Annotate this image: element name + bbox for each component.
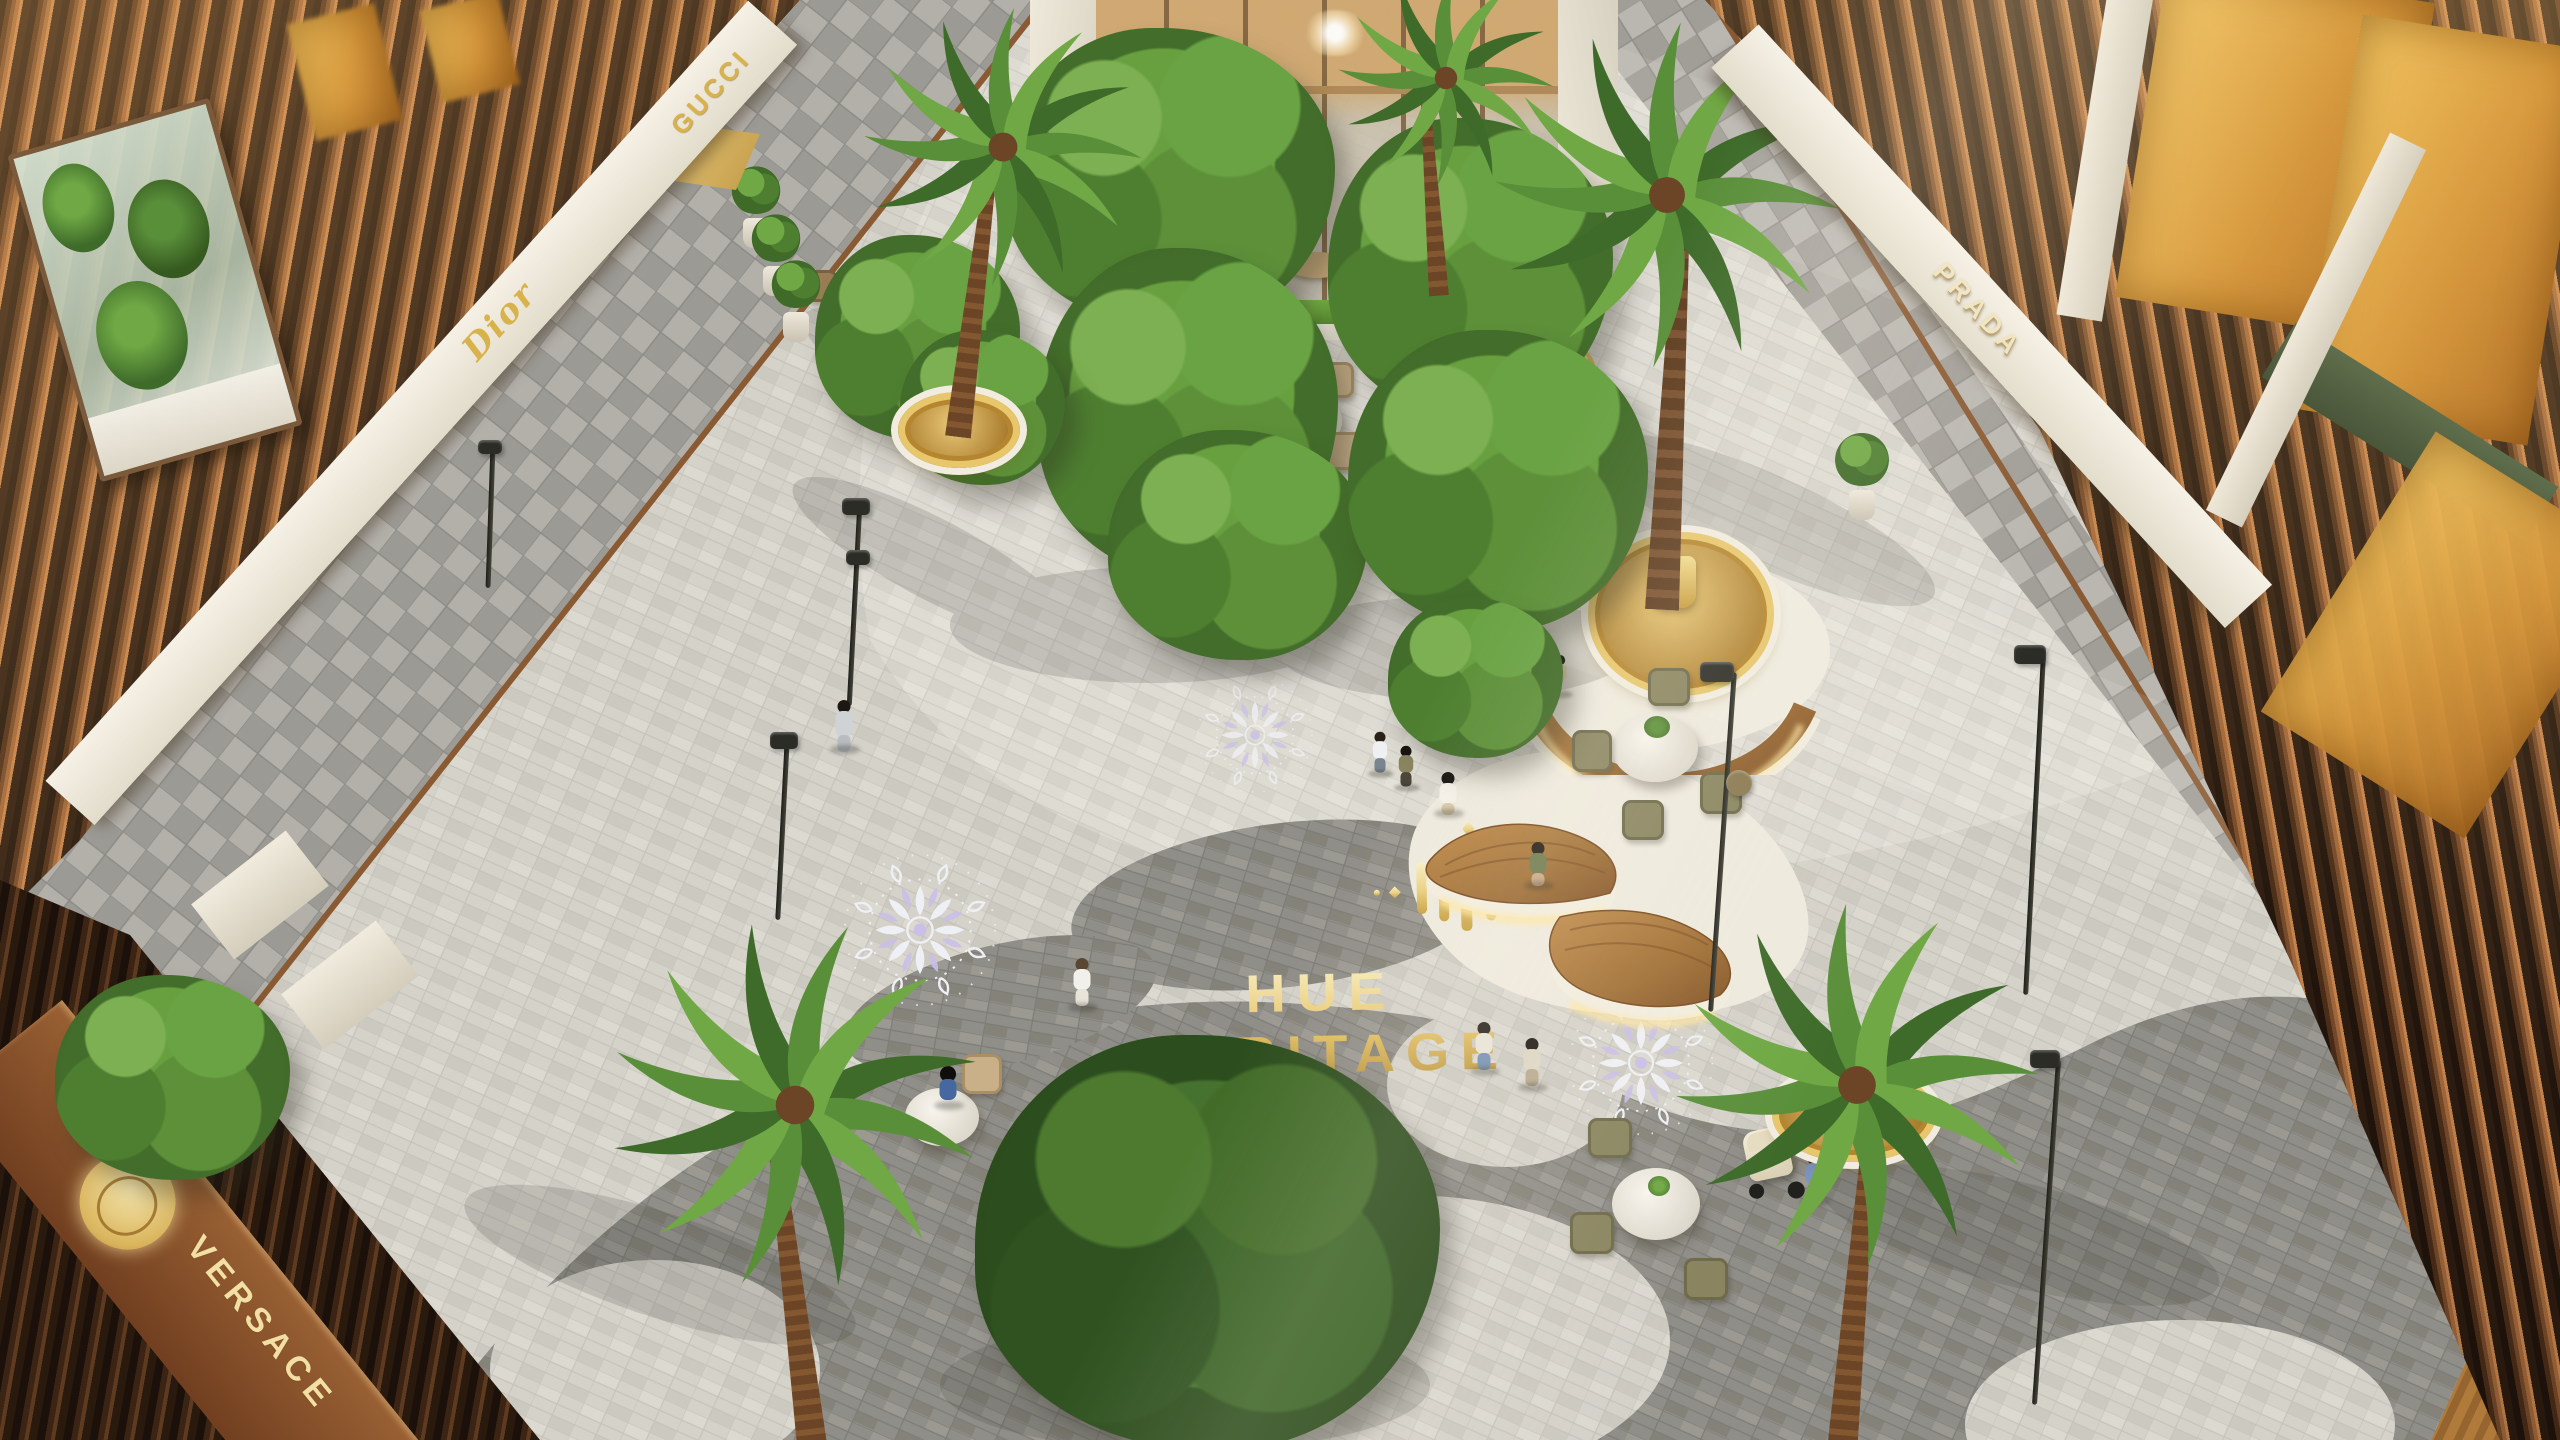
palm-tree-crown (1614, 842, 2100, 1328)
palm-tree-crown (534, 844, 1056, 1366)
tree-canopy-dark (975, 1035, 1440, 1440)
pedestrian (1474, 1022, 1494, 1072)
cafe-chair (1572, 730, 1612, 772)
street-lamp (478, 440, 504, 590)
cafe-chair (1588, 1118, 1632, 1158)
cafe-chair (1570, 1212, 1614, 1254)
potted-plant (1832, 428, 1892, 520)
cafe-chair (1648, 668, 1690, 706)
pedestrian (1398, 746, 1415, 789)
person-seated-bench (1528, 842, 1548, 886)
street-lamp (840, 498, 870, 708)
table-flowers (1644, 716, 1670, 738)
pedestrian (1372, 732, 1389, 775)
hedge (55, 975, 290, 1180)
palm-tree-crown (838, 0, 1168, 312)
pedestrian (834, 700, 854, 750)
pedestrian (1072, 958, 1092, 1008)
shrub (1388, 598, 1563, 758)
mandala-projection-white-upper (1195, 675, 1315, 795)
person-seated-bench (1438, 772, 1458, 814)
pedestrian (1522, 1038, 1542, 1088)
plaza-render: HUE HERITAGE (0, 0, 2560, 1440)
tree-canopy (1108, 430, 1368, 660)
potted-plant (768, 256, 824, 342)
cafe-chair (1622, 800, 1664, 840)
